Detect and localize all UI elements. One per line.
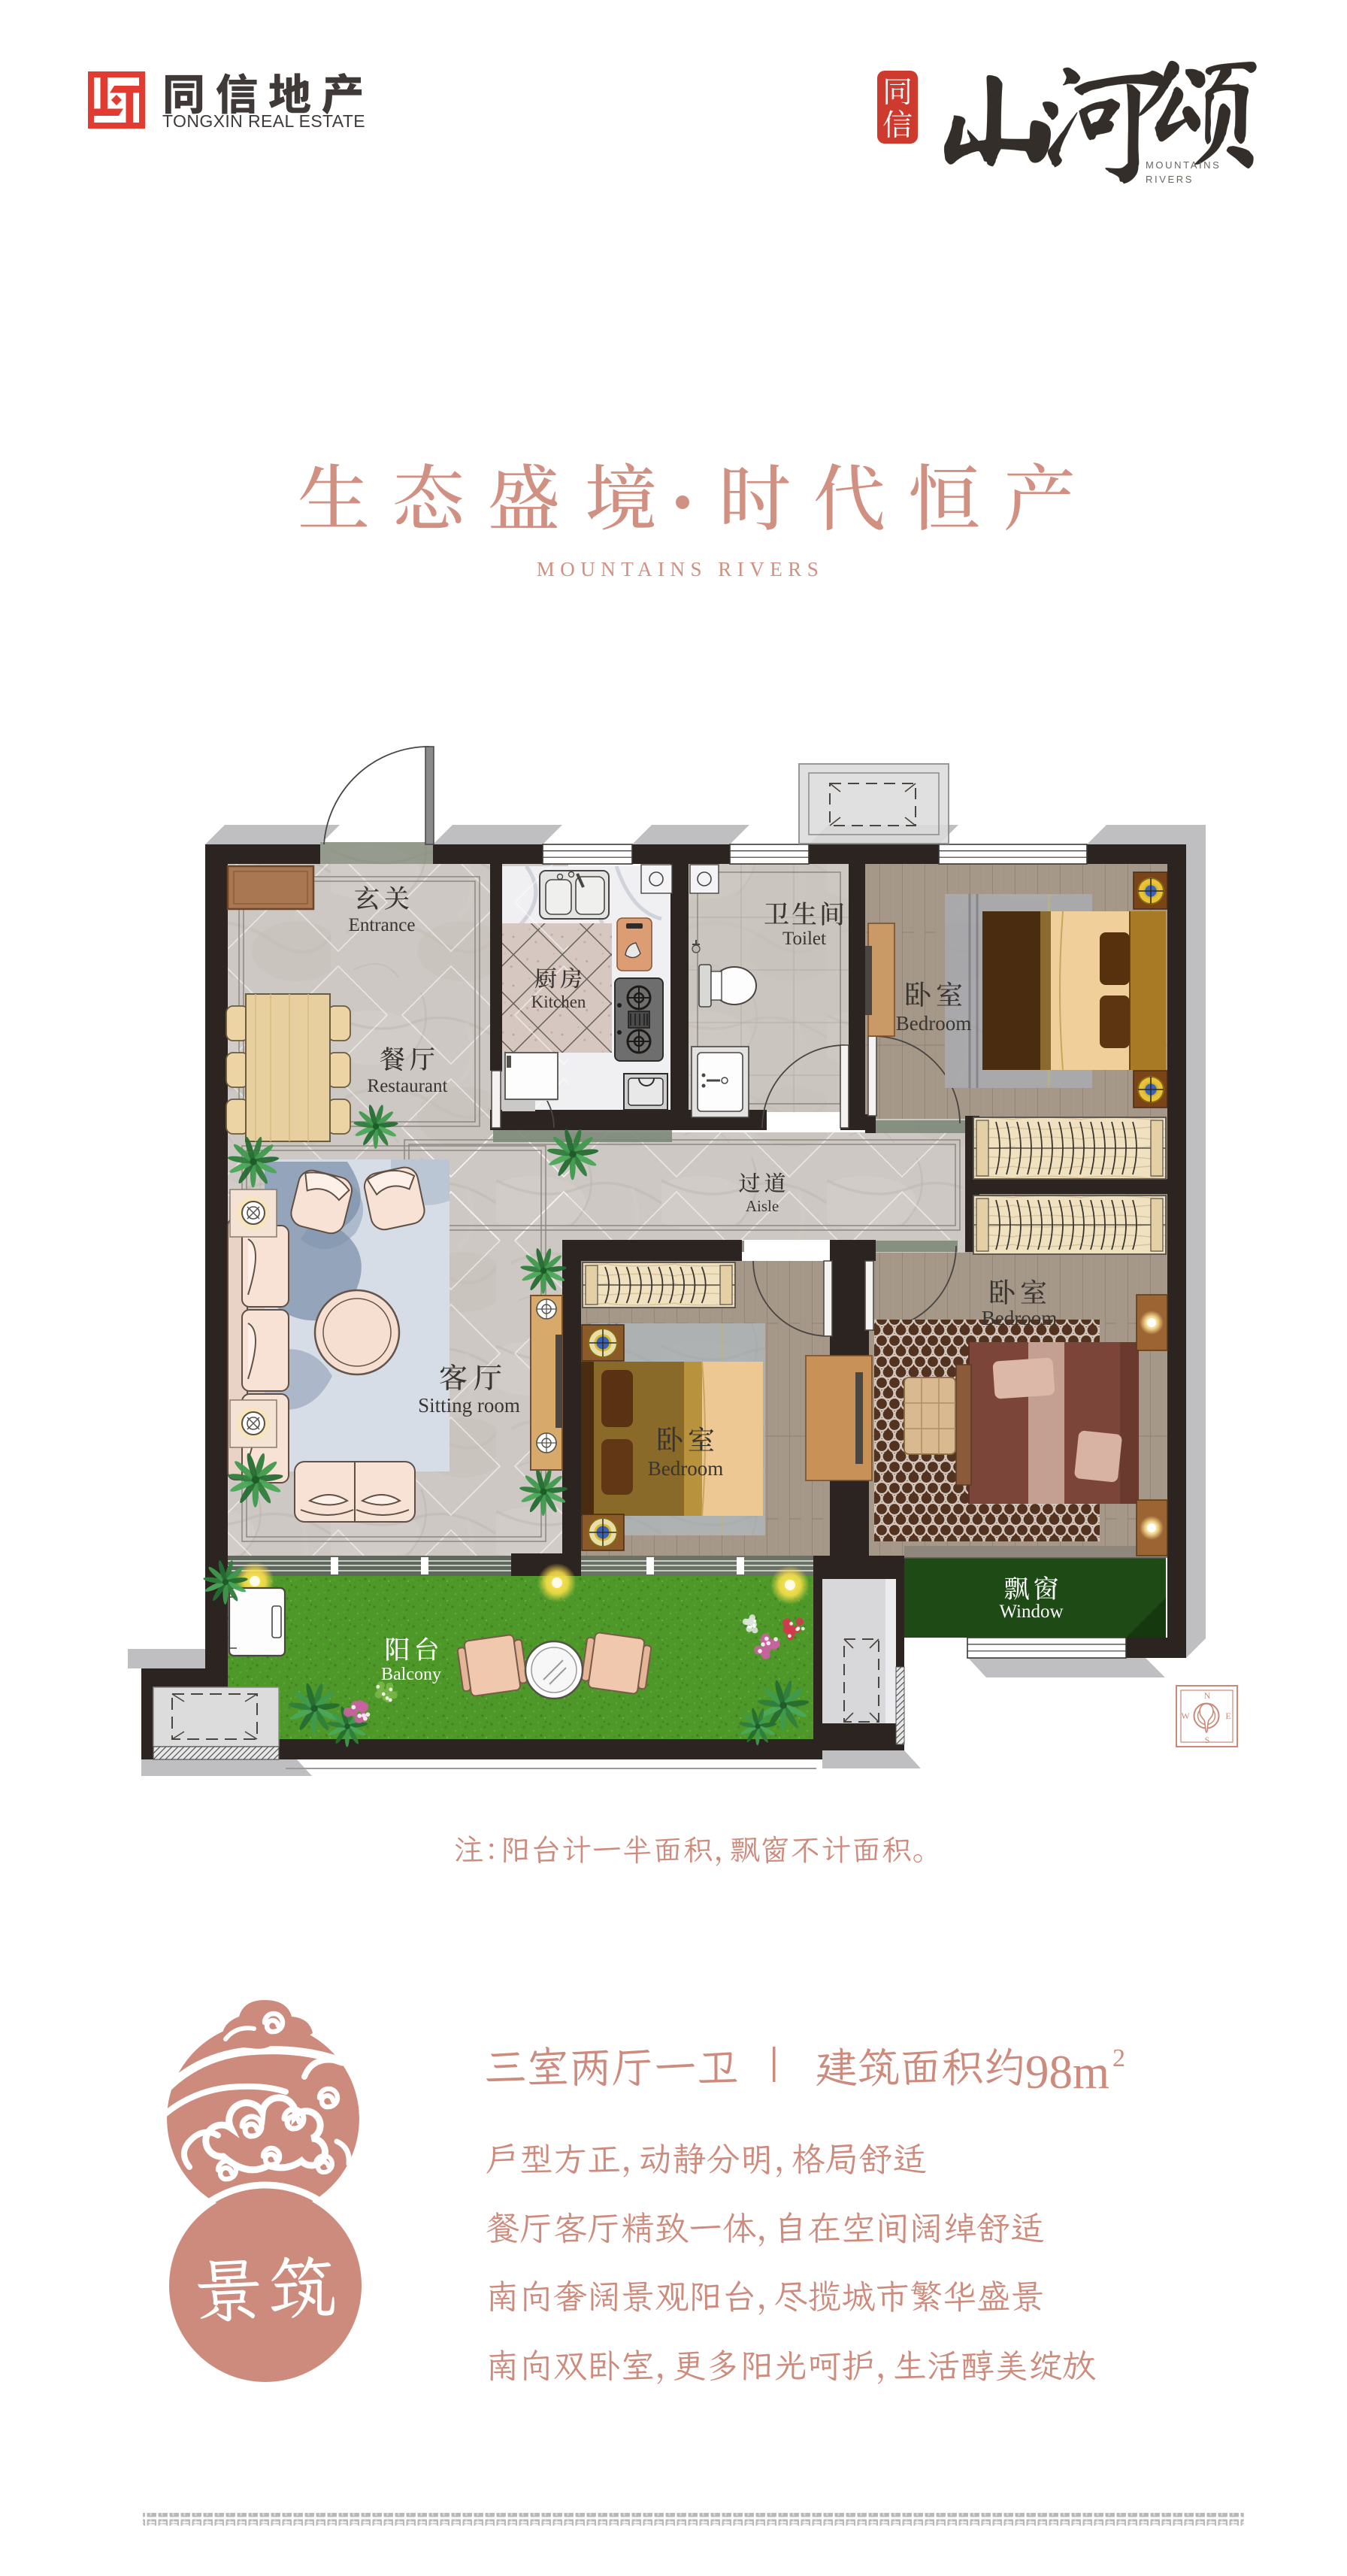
svg-text:2: 2: [1112, 2044, 1125, 2072]
svg-text:Window: Window: [999, 1602, 1063, 1622]
svg-text:Balcony: Balcony: [381, 1665, 441, 1684]
svg-text:Toilet: Toilet: [782, 929, 826, 949]
svg-text:S: S: [1205, 1735, 1210, 1745]
svg-text:98m: 98m: [1025, 2046, 1109, 2099]
svg-text:Entrance: Entrance: [349, 915, 416, 935]
svg-text:Sitting room: Sitting room: [418, 1394, 520, 1417]
svg-text:Bedroom: Bedroom: [982, 1307, 1058, 1329]
svg-text:MOUNTAINS: MOUNTAINS: [1146, 159, 1221, 171]
svg-text:MOUNTAINS RIVERS: MOUNTAINS RIVERS: [537, 558, 825, 580]
svg-text:TONGXIN REAL ESTATE: TONGXIN REAL ESTATE: [162, 111, 365, 131]
svg-text:Kitchen: Kitchen: [531, 993, 586, 1011]
svg-text:Aisle: Aisle: [746, 1197, 779, 1215]
svg-text:N: N: [1204, 1690, 1211, 1701]
svg-text:Bedroom: Bedroom: [648, 1457, 724, 1480]
svg-text:W: W: [1181, 1711, 1190, 1721]
svg-text:Bedroom: Bedroom: [896, 1012, 972, 1035]
svg-text:E: E: [1225, 1711, 1230, 1721]
svg-text:RIVERS: RIVERS: [1146, 174, 1194, 185]
svg-text:Restaurant: Restaurant: [368, 1076, 448, 1096]
